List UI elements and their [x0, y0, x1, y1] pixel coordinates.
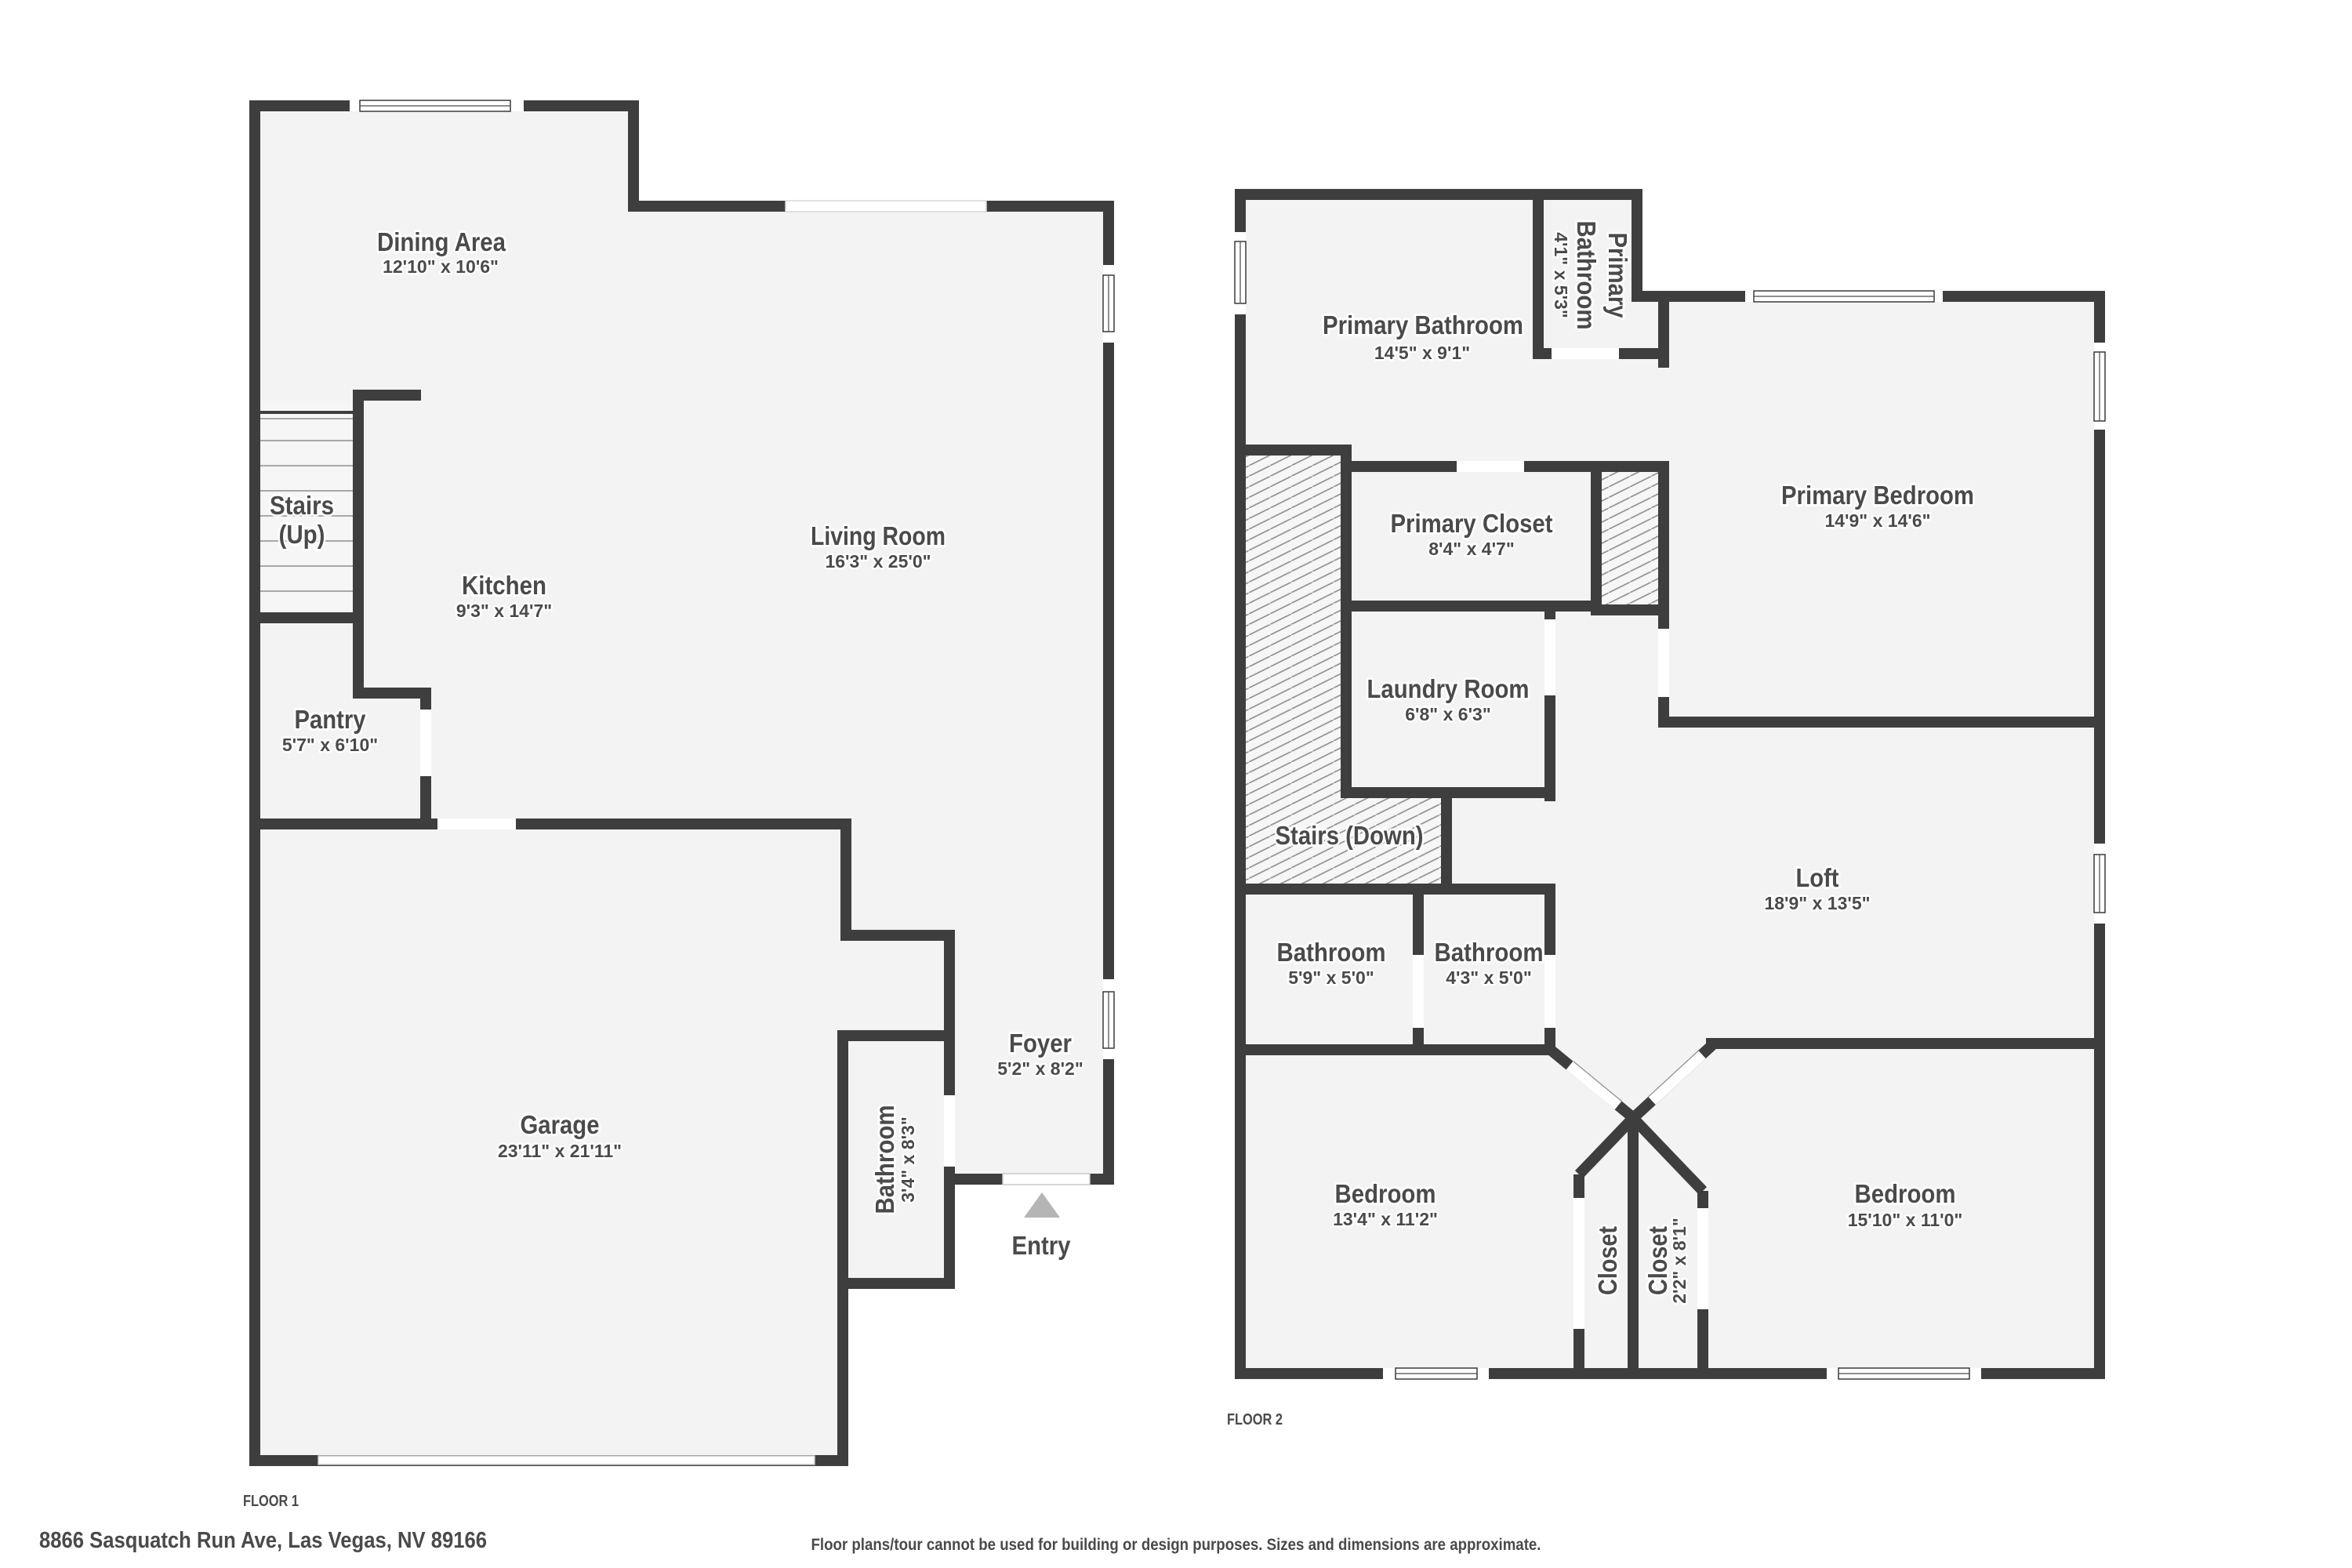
svg-text:23'11" x 21'11": 23'11" x 21'11"	[498, 1141, 622, 1161]
svg-text:FLOOR 2: FLOOR 2	[1227, 1410, 1283, 1428]
svg-text:Stairs (Down): Stairs (Down)	[1276, 821, 1424, 850]
svg-text:5'2" x 8'2": 5'2" x 8'2"	[997, 1058, 1083, 1079]
svg-text:Closet: Closet	[1643, 1226, 1672, 1295]
svg-text:12'10" x 10'6": 12'10" x 10'6"	[383, 256, 499, 277]
svg-text:Primary Closet: Primary Closet	[1391, 509, 1553, 538]
svg-text:Laundry Room: Laundry Room	[1367, 674, 1530, 703]
svg-text:18'9" x 13'5": 18'9" x 13'5"	[1764, 893, 1870, 913]
svg-text:Foyer: Foyer	[1009, 1029, 1072, 1058]
svg-text:Primary: Primary	[1603, 233, 1632, 319]
svg-text:FLOOR 1: FLOOR 1	[243, 1492, 299, 1510]
svg-text:6'8" x 6'3": 6'8" x 6'3"	[1405, 704, 1491, 724]
svg-text:Garage: Garage	[521, 1110, 600, 1139]
svg-text:Bedroom: Bedroom	[1855, 1179, 1956, 1208]
svg-text:Loft: Loft	[1796, 863, 1839, 892]
svg-text:Kitchen: Kitchen	[462, 571, 546, 600]
svg-text:Bedroom: Bedroom	[1335, 1179, 1436, 1208]
svg-text:Primary Bathroom: Primary Bathroom	[1323, 310, 1523, 339]
svg-text:Pantry: Pantry	[295, 705, 367, 734]
svg-text:Bathroom: Bathroom	[1435, 938, 1544, 967]
svg-text:4'3" x 5'0": 4'3" x 5'0"	[1446, 967, 1532, 988]
svg-text:9'3" x 14'7": 9'3" x 14'7"	[456, 601, 552, 621]
svg-text:Bathroom: Bathroom	[1277, 938, 1386, 967]
svg-text:8'4" x 4'7": 8'4" x 4'7"	[1428, 539, 1515, 559]
svg-text:15'10" x 11'0": 15'10" x 11'0"	[1848, 1210, 1963, 1230]
svg-text:Bathroom: Bathroom	[1572, 221, 1601, 330]
svg-text:4'1" x 5'3": 4'1" x 5'3"	[1551, 232, 1571, 318]
svg-text:5'7" x 6'10": 5'7" x 6'10"	[282, 735, 378, 755]
svg-text:5'9" x 5'0": 5'9" x 5'0"	[1288, 967, 1374, 988]
svg-text:Bathroom: Bathroom	[870, 1105, 899, 1214]
svg-text:Floor plans/tour cannot be use: Floor plans/tour cannot be used for buil…	[811, 1536, 1541, 1554]
svg-text:3'4" x 8'3": 3'4" x 8'3"	[898, 1116, 918, 1203]
svg-text:Dining Area: Dining Area	[377, 227, 506, 256]
svg-text:Stairs: Stairs	[270, 491, 334, 520]
svg-text:8866 Sasquatch Run Ave, Las Ve: 8866 Sasquatch Run Ave, Las Vegas, NV 89…	[39, 1528, 487, 1553]
svg-text:Closet: Closet	[1593, 1226, 1622, 1295]
svg-text:Living Room: Living Room	[811, 521, 946, 550]
svg-text:14'9" x 14'6": 14'9" x 14'6"	[1824, 510, 1930, 531]
svg-text:16'3" x 25'0": 16'3" x 25'0"	[825, 551, 931, 572]
svg-text:2'2" x 8'1": 2'2" x 8'1"	[1669, 1218, 1690, 1304]
svg-text:14'5" x 9'1": 14'5" x 9'1"	[1374, 343, 1470, 363]
svg-text:Entry: Entry	[1012, 1231, 1072, 1260]
svg-text:(Up): (Up)	[279, 520, 325, 549]
svg-text:Primary Bedroom: Primary Bedroom	[1781, 481, 1974, 510]
svg-text:13'4" x 11'2": 13'4" x 11'2"	[1333, 1209, 1438, 1229]
